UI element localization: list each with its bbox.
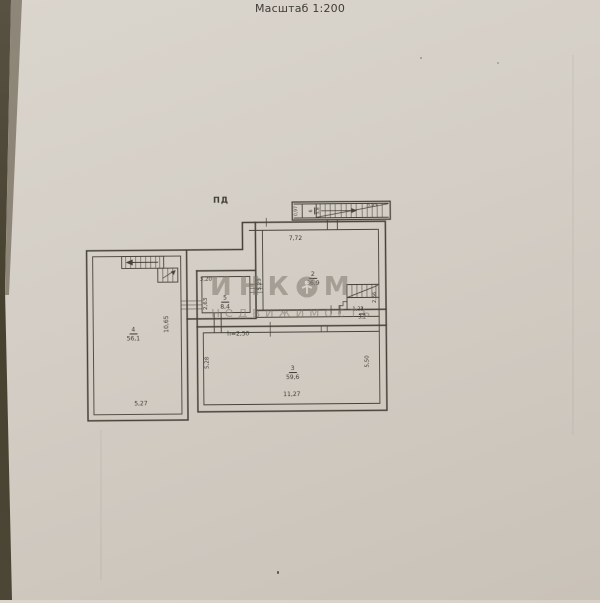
paper-speck (497, 62, 499, 64)
room-3-label: 3 59,6 (286, 355, 300, 382)
room-3-area: 59,6 (286, 374, 299, 382)
paper-speck (420, 57, 422, 59)
watermark-brand-suffix: М (324, 274, 357, 300)
paper-crease (572, 55, 574, 435)
dim-room3-left: 5,28 (204, 357, 210, 369)
room-3-number: 3 (289, 365, 297, 373)
room-6-stair-label: 6 5,8 (297, 207, 321, 214)
room-4-label: 4 56,1 (126, 316, 140, 343)
dim-stair-width: 0,97 (294, 206, 300, 216)
floor-plan-drawing (0, 0, 600, 603)
floor-plan: ПД 4 56,1 5 8,4 2 36,9 3 59,6 1 3,2 6 5,… (0, 0, 600, 603)
dim-room2-top: 7,72 (289, 236, 302, 242)
paper-speck (277, 571, 279, 574)
room-6-number: 6 (309, 207, 315, 214)
watermark-brand: ИНК М (210, 274, 357, 300)
room3-height-note: h=2,50 (227, 331, 249, 337)
dim-room3-right: 5,50 (364, 355, 370, 367)
watermark-brand-prefix: ИНК (210, 274, 296, 300)
watermark-subtitle: недвижимость (211, 306, 375, 321)
dim-room1-right: 2,66 (372, 292, 378, 303)
plan-code-label: ПД (213, 196, 229, 205)
watermark-logo-icon (295, 275, 319, 299)
room-4-number: 4 (129, 326, 137, 334)
dim-stair-length: 5,95 (367, 203, 377, 209)
room-4-area: 56,1 (127, 335, 140, 343)
paper-crease (100, 430, 102, 580)
room-6-area: 5,8 (316, 207, 321, 214)
dim-room4-right: 10,65 (164, 316, 170, 333)
scanned-floorplan-page: { "header": { "scale_label": "Масштаб 1:… (0, 0, 600, 600)
dim-room4-bottom: 5,27 (134, 401, 147, 407)
dim-room3-bottom: 11,27 (283, 392, 300, 398)
dim-room5-left: 2,63 (203, 298, 209, 310)
